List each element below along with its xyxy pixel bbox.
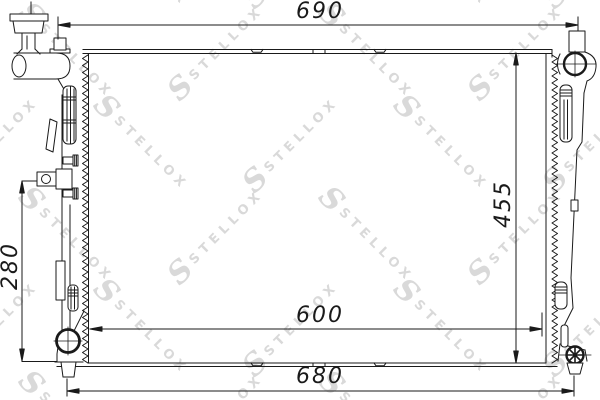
- left-tank-fittings: [37, 86, 78, 335]
- dimension-label-core-width: 600: [290, 305, 350, 327]
- dimension-label-left-tank-height: 280: [0, 246, 22, 290]
- dimension-label-overall-width-top: 690: [290, 1, 350, 23]
- dimension-label-core-height: 455: [493, 184, 515, 228]
- dimension-label-overall-width-bottom: 680: [290, 366, 350, 388]
- clip: [46, 119, 57, 152]
- filler-neck-assembly: [10, 2, 70, 103]
- core-fin-edge-right: [552, 55, 558, 363]
- radiator-technical-drawing: SSTELLOXSSTELLOXSSTELLOXSSTELLOXSSTELLOX…: [0, 0, 600, 400]
- filler-cap: [10, 14, 48, 21]
- right-bracket: [552, 31, 596, 374]
- drain-plug: [54, 300, 84, 377]
- core-fin-edge-left: [83, 55, 89, 363]
- inlet-pipe-end: [12, 55, 26, 77]
